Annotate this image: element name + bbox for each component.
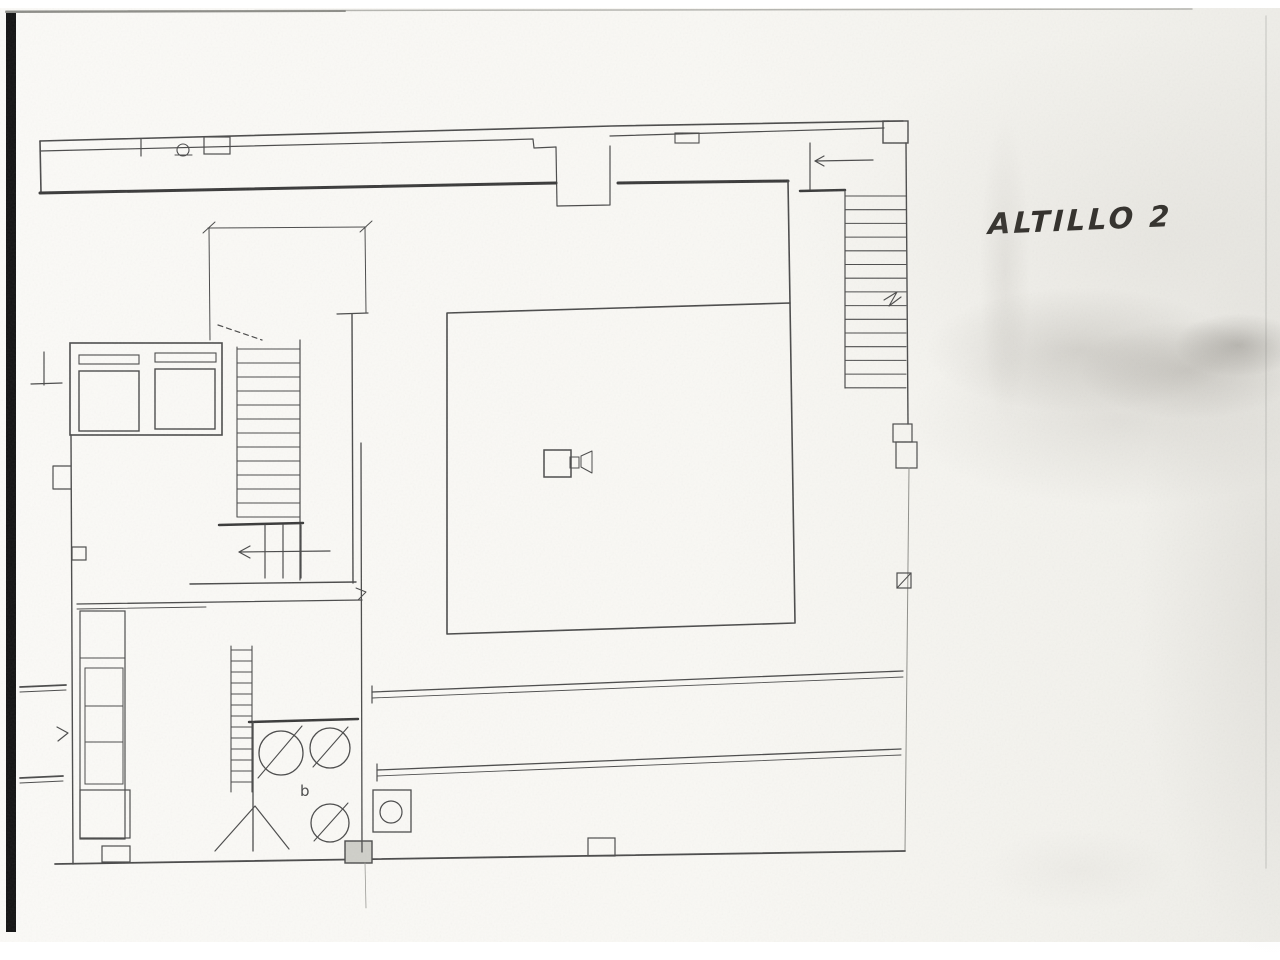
floor-plan-drawing: b	[0, 0, 1280, 960]
scanned-floor-plan: b ALTILLO 2	[0, 0, 1280, 960]
scan-grain-overlay	[0, 8, 1280, 942]
